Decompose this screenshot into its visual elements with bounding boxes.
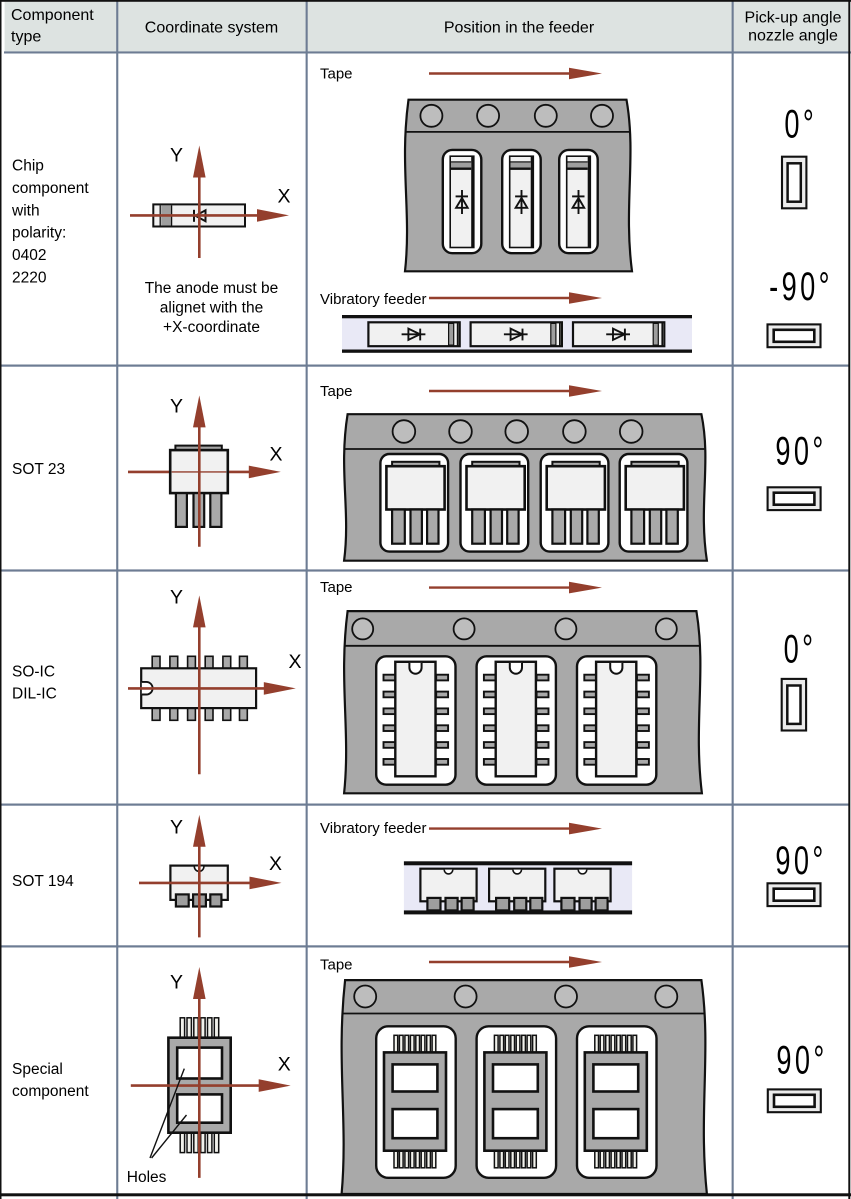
- svg-text:0°: 0°: [784, 102, 817, 146]
- svg-text:Y: Y: [170, 396, 183, 418]
- svg-text:0°: 0°: [784, 627, 817, 671]
- svg-text:X: X: [270, 444, 283, 466]
- svg-text:Y: Y: [170, 145, 183, 167]
- svg-text:Tape: Tape: [320, 66, 353, 83]
- svg-text:Tape: Tape: [320, 579, 353, 596]
- svg-text:nozzle angle: nozzle angle: [748, 28, 838, 45]
- svg-text:DIL-IC: DIL-IC: [12, 686, 57, 703]
- svg-text:Vibratory feeder: Vibratory feeder: [320, 291, 426, 308]
- svg-text:The anode must be: The anode must be: [145, 280, 279, 297]
- svg-text:Y: Y: [170, 972, 183, 994]
- svg-text:Tape: Tape: [320, 957, 353, 974]
- svg-text:X: X: [278, 1054, 291, 1076]
- svg-text:-90°: -90°: [769, 265, 833, 309]
- svg-text:Y: Y: [170, 587, 183, 609]
- svg-text:Pick-up angle: Pick-up angle: [745, 9, 842, 26]
- svg-text:Special: Special: [12, 1061, 63, 1078]
- svg-text:Component: Component: [11, 7, 94, 24]
- svg-text:0402: 0402: [12, 247, 46, 264]
- svg-text:Coordinate system: Coordinate system: [145, 20, 278, 37]
- svg-text:Vibratory feeder: Vibratory feeder: [320, 820, 426, 837]
- svg-text:90°: 90°: [775, 429, 826, 473]
- svg-text:2220: 2220: [12, 270, 47, 287]
- svg-text:SOT 194: SOT 194: [12, 873, 74, 890]
- svg-text:component: component: [12, 180, 89, 197]
- svg-text:type: type: [11, 28, 41, 45]
- svg-text:SO-IC: SO-IC: [12, 664, 55, 681]
- svg-text:Position in the feeder: Position in the feeder: [444, 20, 595, 37]
- svg-text:90°: 90°: [775, 839, 826, 883]
- svg-text:X: X: [289, 651, 302, 673]
- svg-text:Chip: Chip: [12, 158, 44, 175]
- svg-text:Y: Y: [170, 817, 183, 839]
- svg-text:Holes: Holes: [127, 1169, 167, 1186]
- svg-text:Tape: Tape: [320, 383, 353, 400]
- svg-text:component: component: [12, 1083, 89, 1100]
- svg-text:X: X: [278, 186, 291, 208]
- svg-text:SOT 23: SOT 23: [12, 461, 65, 478]
- svg-text:+X-coordinate: +X-coordinate: [163, 319, 260, 336]
- svg-text:with: with: [11, 202, 40, 219]
- svg-text:X: X: [269, 853, 282, 875]
- svg-text:polarity:: polarity:: [12, 225, 66, 242]
- svg-text:alignet with the: alignet with the: [160, 300, 263, 317]
- svg-text:90°: 90°: [776, 1038, 827, 1082]
